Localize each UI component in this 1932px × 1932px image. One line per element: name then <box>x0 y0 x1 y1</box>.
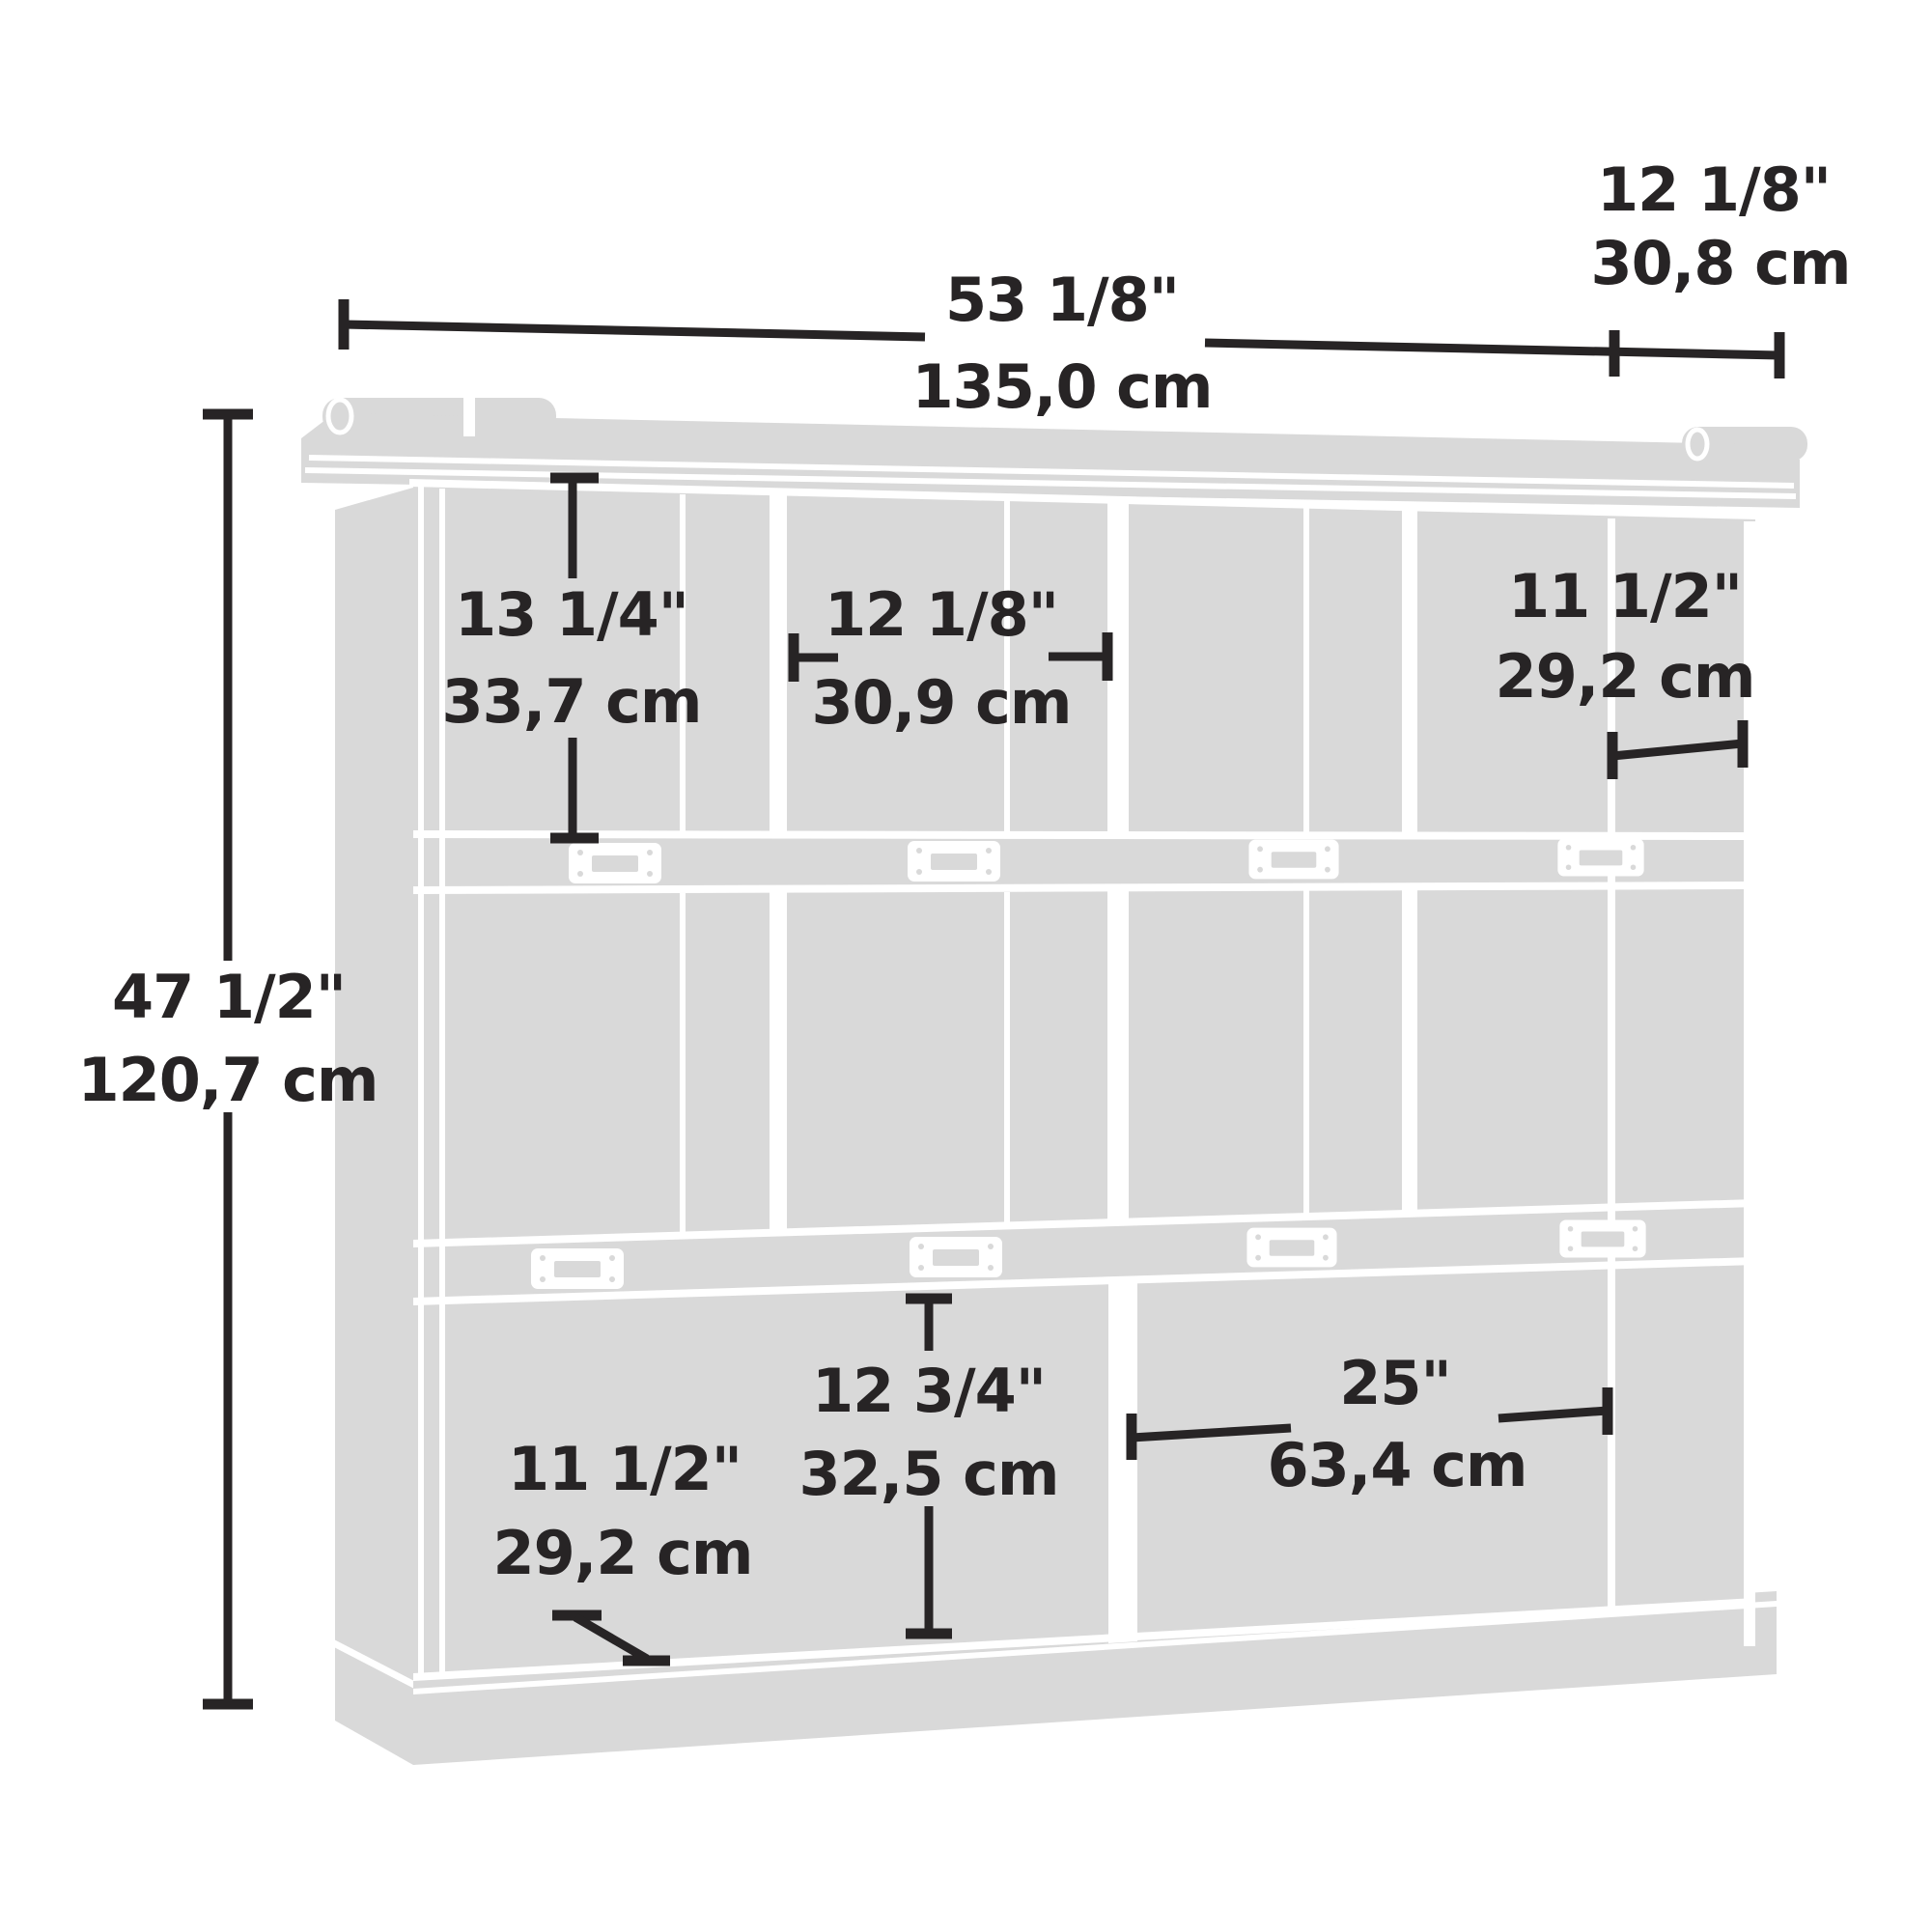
shelf-label-plate <box>908 841 1000 882</box>
overall-height-inches-label: 47 1/2" <box>112 962 346 1032</box>
bottom-center-divider <box>1108 1279 1137 1643</box>
bookcase-dimension-diagram: 53 1/8" 135,0 cm 12 1/8" 30,8 cm 47 1/2"… <box>0 0 1932 1932</box>
bottom-opening-width-cm-label: 63,4 cm <box>1268 1430 1527 1500</box>
bottom-cubby-height-inches-label: 12 3/4" <box>812 1356 1046 1426</box>
cubby-depth-cm-label: 29,2 cm <box>1496 641 1755 712</box>
bottom-cubby-height-cm-label: 32,5 cm <box>799 1439 1059 1509</box>
dimension-overall-width: 53 1/8" 135,0 cm <box>344 265 1779 422</box>
overall-width-inches-label: 53 1/8" <box>945 265 1179 335</box>
top-cubby-width-inches-label: 12 1/8" <box>825 579 1058 650</box>
diagram-canvas: 53 1/8" 135,0 cm 12 1/8" 30,8 cm 47 1/2"… <box>0 0 1932 1932</box>
overall-height-cm-label: 120,7 cm <box>77 1045 378 1115</box>
shelf-label-plate <box>1559 1219 1645 1257</box>
divider-back-edge <box>1303 890 1309 1215</box>
overall-width-cm-label: 135,0 cm <box>911 351 1212 422</box>
dimension-overall-depth: 12 1/8" 30,8 cm <box>1591 154 1851 298</box>
top-cubby-width-cm-label: 30,9 cm <box>812 667 1072 738</box>
left-stile-line <box>418 487 424 1676</box>
shelf-label-plate <box>1557 838 1643 876</box>
divider-back-edge <box>1303 505 1309 834</box>
cubby-divider <box>1402 886 1417 1215</box>
cubby-divider <box>1107 887 1129 1223</box>
cubby-divider <box>1402 507 1417 833</box>
divider-back-edge <box>1004 497 1010 834</box>
cubby-divider <box>770 888 787 1234</box>
top-cubby-height-inches-label: 13 1/4" <box>455 579 688 650</box>
overall-depth-cm-label: 30,8 cm <box>1591 228 1851 298</box>
cubby-divider <box>770 490 787 834</box>
bookcase-left-side-panel <box>335 488 413 1765</box>
bottom-shelf-depth-inches-label: 11 1/2" <box>508 1434 742 1504</box>
divider-back-edge <box>1004 892 1010 1223</box>
crown-roll-notch <box>463 394 475 436</box>
shelf-label-plate <box>569 843 661 883</box>
bottom-opening-width-inches-label: 25" <box>1339 1348 1451 1418</box>
top-cubby-height-cm-label: 33,7 cm <box>442 666 702 737</box>
shelf-label-plate <box>531 1248 624 1289</box>
overall-depth-inches-label: 12 1/8" <box>1597 154 1831 225</box>
divider-back-edge <box>680 893 686 1233</box>
bottom-shelf-depth-cm-label: 29,2 cm <box>493 1518 753 1588</box>
shelf-label-plate <box>910 1237 1002 1277</box>
divider-back-edge <box>680 494 686 834</box>
shelf-label-plate <box>1248 840 1338 880</box>
shelf-label-plate <box>1246 1228 1336 1268</box>
dimension-overall-height: 47 1/2" 120,7 cm <box>77 414 378 1704</box>
cubby-depth-inches-label: 11 1/2" <box>1508 561 1742 631</box>
